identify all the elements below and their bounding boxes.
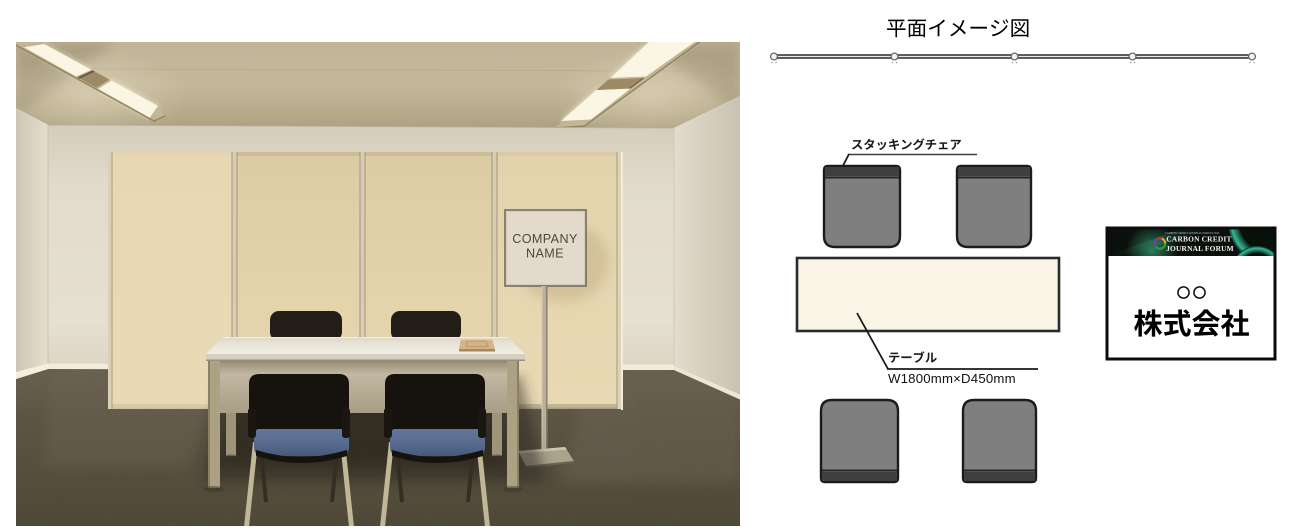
svg-text:JOURNAL FORUM: JOURNAL FORUM [1166, 244, 1234, 253]
svg-text:CARBON CREDIT: CARBON CREDIT [1166, 235, 1231, 244]
svg-text:W1800mm×D450mm: W1800mm×D450mm [888, 371, 1016, 386]
